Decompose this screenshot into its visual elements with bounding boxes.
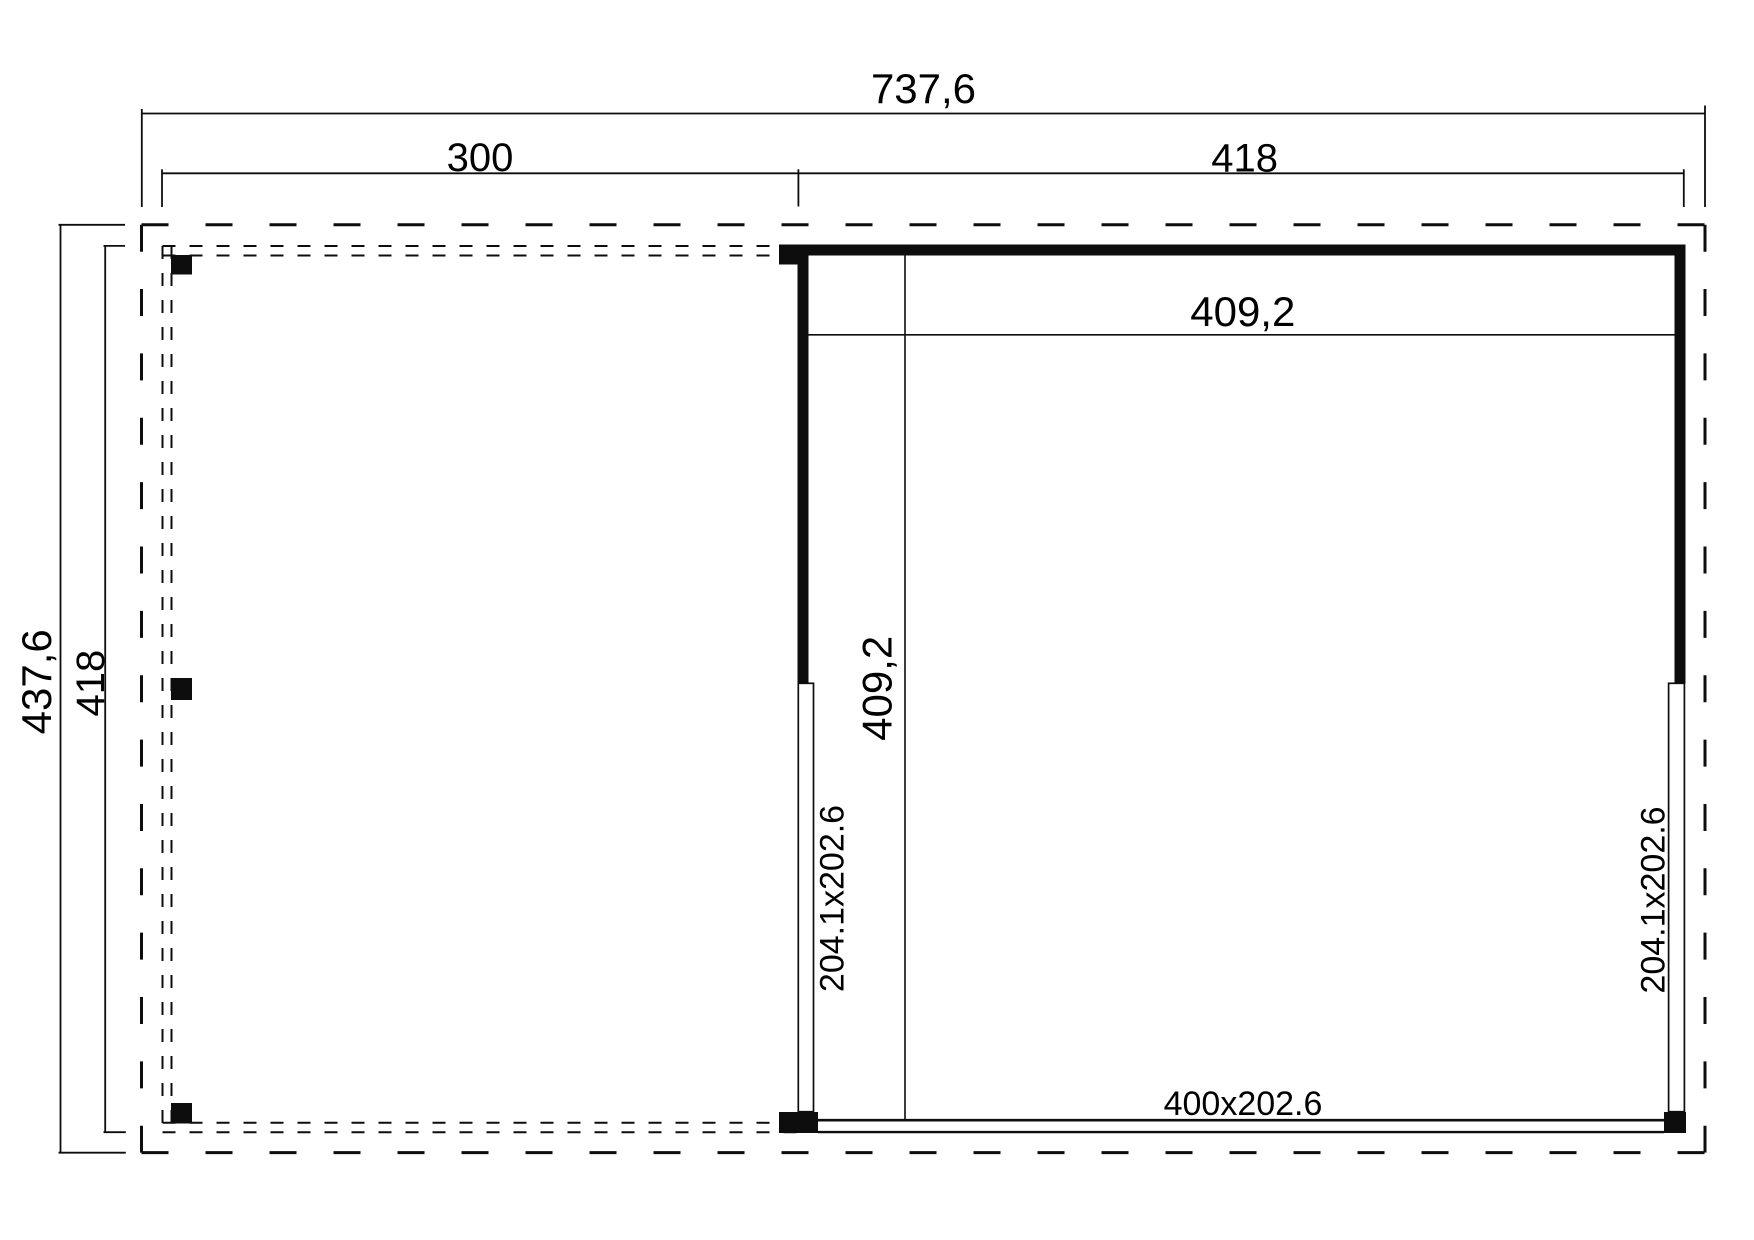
svg-text:737,6: 737,6 [871, 65, 976, 112]
svg-text:418: 418 [69, 650, 113, 717]
svg-text:204.1x202.6: 204.1x202.6 [1635, 806, 1673, 993]
svg-text:409,2: 409,2 [854, 636, 901, 741]
svg-text:409,2: 409,2 [1190, 288, 1295, 335]
svg-text:400x202.6: 400x202.6 [1164, 1085, 1323, 1123]
svg-text:437,6: 437,6 [13, 629, 60, 734]
svg-text:418: 418 [1211, 137, 1278, 181]
svg-text:204.1x202.6: 204.1x202.6 [814, 805, 852, 992]
svg-text:300: 300 [447, 136, 514, 180]
